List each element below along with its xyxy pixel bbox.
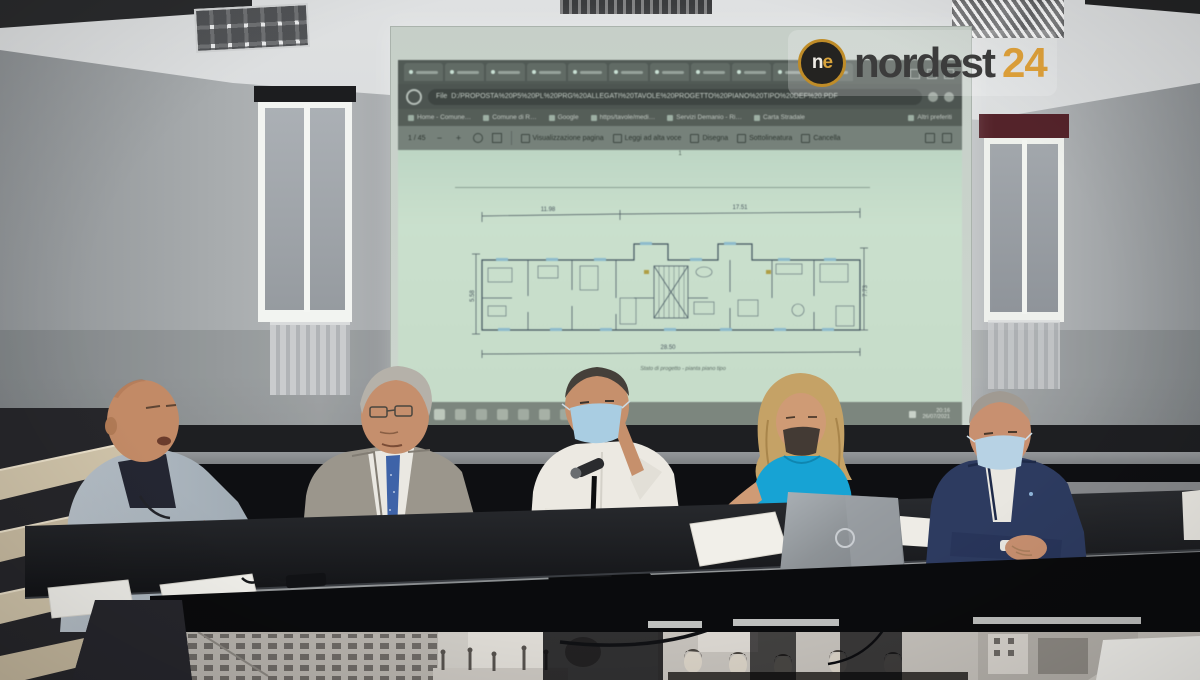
ear [105, 417, 117, 435]
paper-right-edge [1182, 490, 1200, 540]
logo-number: 24 [1002, 39, 1047, 87]
surgical-mask [975, 435, 1025, 469]
panelists-and-table [0, 0, 1200, 680]
lapel-pin [1029, 492, 1033, 496]
dark-face-mask [783, 427, 820, 456]
logo-badge-icon: n e [798, 39, 846, 87]
surgical-mask [570, 403, 622, 443]
logo-wordmark: nordest [854, 39, 994, 87]
press-conference-photo: File D:/PROPOSTA%20P5%20PL%20PRG%20ALLEG… [0, 0, 1200, 680]
clasped-hands [1005, 535, 1047, 561]
smartphone [286, 573, 327, 589]
open-mouth [157, 437, 171, 446]
nordest24-logo: n e nordest 24 [788, 30, 1057, 96]
